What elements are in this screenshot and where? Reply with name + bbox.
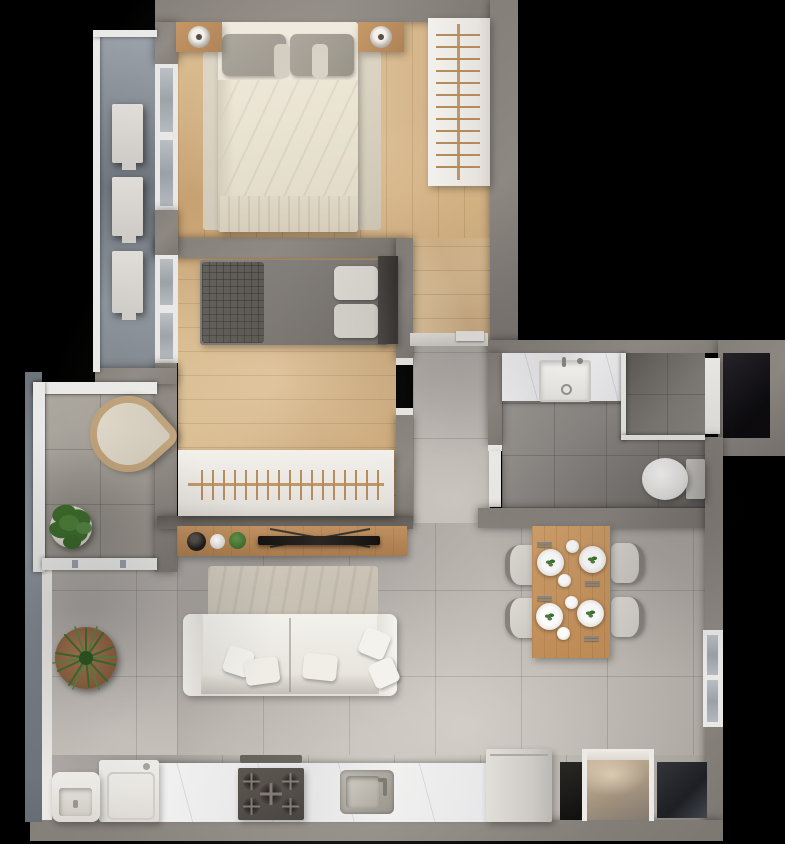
sofa-back-shadow [201,674,379,694]
terrace-glass-door [42,558,157,570]
kitchen-faucet [383,780,387,796]
entry-threshold [587,749,649,760]
tub-drain [73,800,78,808]
sofa-armrest-left [183,614,203,696]
washing-machine[interactable] [99,760,159,822]
decor-bowl-black [187,532,206,551]
bed2-pillow-1 [334,266,378,300]
entry-door-jamb-right [649,749,654,821]
plate-1 [537,549,564,576]
toilet-bowl[interactable] [642,458,688,500]
terrace-plant-leaves [42,496,102,558]
plate-3 [536,603,563,630]
sink-basin [346,776,380,808]
cutlery-3b [537,599,552,601]
wall-bed2-hall-lower [396,415,413,523]
lamp-left [188,26,210,48]
closet-hangers [436,26,480,178]
bed1-pillow-small-1 [274,44,290,78]
living-rug [208,566,378,618]
burner-5 [282,798,299,815]
wall-left-a [155,22,178,64]
sink-drain [561,384,572,395]
master-bedroom-alcove-floor [410,238,490,343]
bed2-knit-blanket [202,262,264,343]
single-bed [200,260,388,345]
bathroom-door-leaf [489,451,501,507]
service-balcony-railing-left [93,30,100,372]
ac-unit-1-tab [122,163,136,170]
range-shelf [240,755,302,763]
dining-chair-bottom-right[interactable] [611,597,644,637]
burner-2 [282,773,299,790]
bed2-door-jamb-bottom [396,408,413,415]
bed1-duvet [218,80,358,196]
wall-left-b [155,210,178,255]
kitchen-faucet-head [378,778,387,782]
plate-2 [579,546,606,573]
bed2-tall-cabinet [378,256,398,344]
fridge-handle-line [490,754,548,756]
lamp-right [370,26,392,48]
hallway-floor [413,345,490,525]
bowl-1 [566,540,579,553]
gas-cooktop[interactable] [238,768,304,820]
sofa-pillow-3 [302,652,339,681]
bedroom2-wardrobe [178,450,394,516]
ac-unit-3 [112,251,143,313]
washer-knob [143,763,150,770]
wall-bathroom-bottom [478,508,723,528]
wardrobe2-hangers [192,470,380,500]
wall-bed1-bed2 [155,238,398,258]
closet-wardrobe [428,18,490,186]
cutlery-3a [537,596,552,598]
entry-vestibule-floor[interactable] [587,760,649,820]
decor-moss-ball [229,532,246,549]
double-bed [218,22,358,232]
kitchen-countertop [157,763,487,822]
wall-bathroom-left [488,353,502,445]
dining-window [703,630,723,727]
burner-1 [243,773,260,790]
floor-plan [0,0,785,844]
ac-unit-1 [112,104,143,163]
ac-unit-2 [112,177,143,236]
burner-4 [243,798,260,815]
refrigerator[interactable] [486,749,552,822]
cutlery-1b [537,545,552,547]
faucet-spout [562,357,566,367]
shaft-door-leaf [705,358,720,434]
faucet-handle-right [577,358,583,364]
washer-lid [107,772,155,820]
bed1-side-fold [218,80,234,196]
wall-bottom [30,820,723,841]
dark-niche-right [657,762,707,818]
ac-unit-3-tab [122,313,136,320]
flat-tv [258,536,380,545]
kitchen-sink[interactable] [340,770,394,814]
bed2-pillow-2 [334,304,378,338]
cutlery-2b [585,584,600,586]
service-shaft [723,353,770,438]
bed1-pillow-small-2 [312,44,328,78]
bed1-foot-blanket [218,196,358,232]
laundry-tub[interactable] [52,772,100,822]
sofa-pillow-2 [243,656,280,686]
terrace-door-mullion-1 [72,560,78,568]
service-balcony-railing-top [93,30,157,37]
terrace-door-mullion-2 [120,560,126,568]
decor-bowl-white [210,534,225,549]
bedroom1-window [155,64,178,210]
plate-4 [577,600,604,627]
terrace-glass-top [33,382,157,394]
sofa [183,614,397,696]
burner-3 [260,783,282,805]
toilet-tank [686,459,705,499]
cutlery-4b [584,639,599,641]
shower-glass-left [621,353,626,440]
bedroom2-window [155,255,178,363]
bed2-door-jamb-top [396,358,413,365]
bed2-duvet [264,260,336,345]
wall-terrace-right [155,363,177,572]
shower-floor [625,353,705,437]
faucet-handle-left [547,358,553,364]
cutlery-4a [584,636,599,638]
bowl-2 [558,574,571,587]
ac-unit-2-tab [122,236,136,243]
open-door-pictogram [456,331,484,341]
vanity-sink[interactable] [539,360,591,402]
living-plant-leaves [51,623,121,693]
bowl-3 [565,596,578,609]
dining-chair-top-right[interactable] [611,543,644,583]
wall-right-upper [490,0,518,353]
shower-glass-bottom [621,435,705,440]
cutlery-2a [585,581,600,583]
cutlery-1a [537,542,552,544]
bowl-4 [557,627,570,640]
